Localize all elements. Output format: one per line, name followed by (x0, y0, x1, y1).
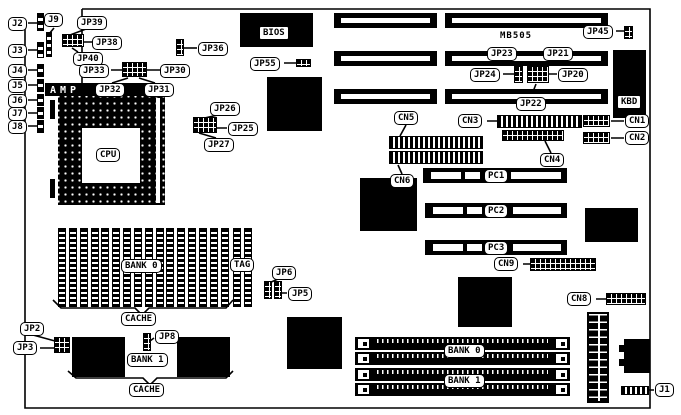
label-jp22: JP22 (516, 97, 546, 111)
label-jp20: JP20 (558, 68, 588, 82)
label-pc2: PC2 (484, 204, 508, 218)
label-jp8: JP8 (155, 330, 179, 344)
connector-j6 (37, 94, 44, 106)
label-cache-top: CACHE (121, 312, 156, 326)
power-connector (587, 312, 609, 403)
label-jp23: JP23 (487, 47, 517, 61)
connector-cn6 (389, 151, 483, 164)
jumper-block-jp25-jp26-jp27 (193, 117, 217, 133)
isa-slot-3-16bit (334, 89, 437, 104)
label-cn8: CN8 (567, 292, 591, 306)
socket-tab-top (50, 100, 55, 119)
cache-dip-column (221, 228, 229, 307)
label-j8: J8 (8, 120, 27, 134)
label-jp36: JP36 (198, 42, 228, 56)
connector-cn3 (497, 115, 582, 128)
label-cn2: CN2 (625, 131, 649, 145)
label-jp45: JP45 (583, 25, 613, 39)
qfp-chip-3 (585, 208, 638, 242)
jumper-jp36 (176, 39, 184, 56)
qfp-chip-4 (458, 277, 512, 327)
motherboard-diagram: AMP MB505 (0, 0, 681, 415)
label-j2: J2 (8, 17, 27, 31)
label-jp27: JP27 (204, 138, 234, 152)
label-bank1-cache: BANK 1 (127, 353, 168, 367)
connector-cn5 (389, 136, 483, 149)
cache-dip-column (188, 228, 196, 307)
label-jp5: JP5 (288, 287, 312, 301)
label-j1: J1 (655, 383, 674, 397)
cache-dip-column (177, 228, 185, 307)
label-cache-bottom: CACHE (129, 383, 164, 397)
jumper-jp24-strip (514, 66, 523, 83)
label-pc1: PC1 (484, 169, 508, 183)
connector-j9 (46, 32, 52, 57)
jumper-block-jp38-jp39-jp40 (62, 34, 84, 47)
label-jp33: JP33 (79, 64, 109, 78)
label-bank0-cache: BANK 0 (121, 259, 162, 273)
label-tag: TAG (230, 258, 254, 272)
jumper-jp5 (274, 281, 282, 299)
label-cn3: CN3 (458, 114, 482, 128)
jumper-jp8 (143, 333, 151, 351)
cache-dip-column (80, 228, 88, 307)
label-jp39: JP39 (77, 16, 107, 30)
label-bank0-simm: BANK 0 (444, 344, 485, 358)
cache-dip-column (166, 228, 174, 307)
label-cn6: CN6 (390, 174, 414, 188)
qfp-chip-1 (267, 77, 322, 131)
connector-cn1 (583, 115, 610, 127)
cache-dip-column (112, 228, 120, 307)
label-jp31: JP31 (144, 83, 174, 97)
socket-tab-bottom (50, 179, 55, 198)
label-jp25: JP25 (228, 122, 258, 136)
label-kbd: KBD (617, 95, 641, 109)
label-cn4: CN4 (540, 153, 564, 167)
connector-j5 (37, 79, 44, 92)
label-cpu: CPU (96, 148, 120, 162)
label-jp30: JP30 (160, 64, 190, 78)
jumper-jp45 (624, 26, 633, 39)
jumper-block-jp2-jp3 (54, 337, 70, 353)
connector-cn8 (606, 293, 646, 305)
label-j9: J9 (44, 13, 63, 27)
connector-cn9 (530, 258, 596, 271)
label-jp26: JP26 (210, 102, 240, 116)
jumper-jp55 (296, 59, 311, 67)
cache-dip-column (101, 228, 109, 307)
label-j7: J7 (8, 107, 27, 121)
label-jp21: JP21 (543, 47, 573, 61)
label-j3: J3 (8, 44, 27, 58)
label-cn1: CN1 (625, 114, 649, 128)
jumper-jp6 (264, 281, 272, 299)
label-cn9: CN9 (494, 257, 518, 271)
cache-dip-column (69, 228, 77, 307)
connector-j3 (37, 42, 44, 58)
label-j6: J6 (8, 94, 27, 108)
amp-text: AMP (50, 85, 80, 96)
label-jp6: JP6 (272, 266, 296, 280)
qfp-chip-5 (287, 317, 342, 369)
cache-chip-bank1-left (72, 337, 125, 377)
cache-dip-column (210, 228, 218, 307)
label-jp32: JP32 (95, 83, 125, 97)
connector-j4 (37, 64, 44, 77)
isa-slot-2-8bit (445, 51, 608, 66)
connector-cn4 (502, 130, 564, 141)
label-jp38: JP38 (92, 36, 122, 50)
cache-dip-column (58, 228, 66, 307)
jumper-block-jp30-jp33 (122, 62, 147, 77)
label-jp24: JP24 (470, 68, 500, 82)
cache-dip-column (91, 228, 99, 307)
connector-j8 (37, 120, 44, 133)
cpu-socket-gap (156, 98, 160, 203)
label-pc3: PC3 (484, 241, 508, 255)
isa-slot-2-16bit (334, 51, 437, 66)
label-jp55: JP55 (250, 57, 280, 71)
connector-cn2 (583, 132, 610, 144)
label-jp2: JP2 (20, 322, 44, 336)
label-j5: J5 (8, 79, 27, 93)
connector-j7 (37, 107, 44, 119)
connector-j2 (37, 13, 44, 31)
jumper-block-jp20-jp21-jp22-jp23 (527, 66, 549, 83)
label-jp3: JP3 (13, 341, 37, 355)
cache-dip-column (199, 228, 207, 307)
isa-slot-1-16bit (334, 13, 437, 28)
din-connector-block (624, 339, 650, 373)
label-cn5: CN5 (394, 111, 418, 125)
board-silkscreen-text: MB505 (500, 31, 532, 41)
label-j4: J4 (8, 64, 27, 78)
label-bank1-simm: BANK 1 (444, 374, 485, 388)
cache-chip-bank1-right (177, 337, 230, 377)
label-bios: BIOS (259, 26, 289, 40)
connector-j1 (621, 386, 649, 395)
